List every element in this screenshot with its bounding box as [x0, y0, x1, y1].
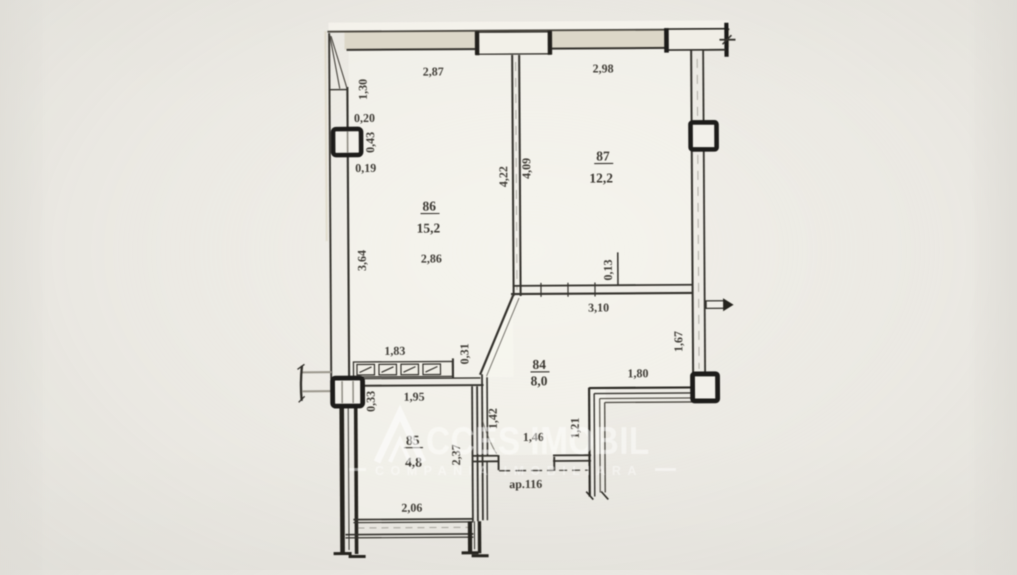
svg-text:2,87: 2,87 [423, 64, 444, 78]
svg-text:0,33: 0,33 [364, 391, 378, 412]
svg-text:0,13: 0,13 [601, 259, 615, 280]
svg-text:2,86: 2,86 [421, 251, 442, 265]
svg-text:4,09: 4,09 [519, 158, 533, 179]
svg-text:4,22: 4,22 [496, 166, 510, 187]
svg-text:3,10: 3,10 [588, 300, 609, 314]
svg-text:2,06: 2,06 [401, 501, 422, 515]
svg-text:0,43: 0,43 [363, 132, 377, 153]
svg-text:0,19: 0,19 [355, 161, 376, 175]
svg-text:84: 84 [532, 357, 546, 372]
svg-text:1,95: 1,95 [404, 390, 425, 404]
svg-text:1,83: 1,83 [384, 344, 405, 358]
svg-text:1,30: 1,30 [356, 79, 370, 100]
svg-text:3,64: 3,64 [355, 250, 369, 271]
svg-text:2,98: 2,98 [593, 61, 614, 75]
svg-text:ap.116: ap.116 [509, 477, 542, 491]
svg-text:1,67: 1,67 [671, 331, 685, 352]
svg-text:1,80: 1,80 [627, 366, 648, 380]
svg-text:8,0: 8,0 [531, 373, 548, 388]
svg-text:0,31: 0,31 [457, 343, 471, 364]
svg-text:COMPANIA IMOBILIARA: COMPANIA IMOBILIARA [375, 464, 643, 478]
svg-text:12,2: 12,2 [589, 170, 613, 185]
svg-text:86: 86 [422, 199, 436, 214]
svg-text:0,20: 0,20 [354, 111, 375, 125]
svg-text:87: 87 [596, 148, 610, 163]
svg-text:15,2: 15,2 [417, 220, 441, 235]
svg-text:CCES IMOBIL: CCES IMOBIL [426, 419, 650, 463]
